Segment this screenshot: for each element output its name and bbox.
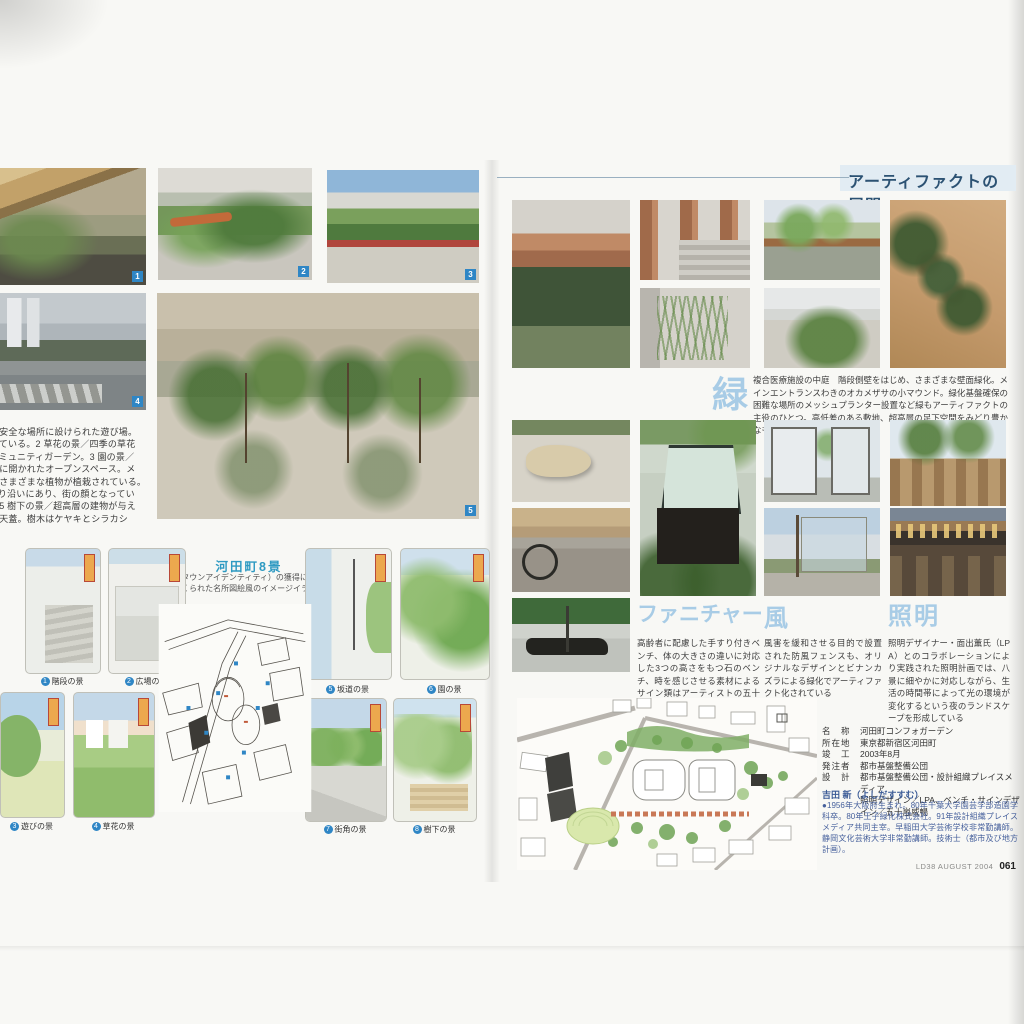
scan-corner-shadow [0,0,110,70]
caption-number-chip: 8 [413,825,422,834]
project-row: 竣 工 2003年8月 [822,749,1020,761]
caption-line: ッシュプランターには、さまざまな植物が植栽されている。 [0,476,158,488]
caption-label: 樹下の景 [424,825,456,834]
photo-wall-grasses [640,288,750,368]
page-number: 061 [999,861,1016,872]
photo-playground-canopy: 1 [0,168,146,285]
photo-bicycle-rack [512,508,630,592]
caption-number-chip: 3 [10,822,19,831]
light-pole-shape [566,606,569,652]
caption-number-chip: 6 [427,685,436,694]
photo-park-corten-wall [764,200,880,280]
magazine-spread: 1 2 3 4 5 遊びの景／敷地内の最も安全な場所に設けられた遊び場。 いつも… [0,0,1024,1024]
caption-number-chip: 4 [92,822,101,831]
illustration-under-trees-view [393,698,477,822]
photo-courtyard-trees: 5 [157,293,479,519]
caption-number-chip: 1 [41,677,50,686]
caption-label: 坂道の景 [337,685,369,694]
caption-label: 園の景 [438,685,462,694]
illustration-play-view [0,692,65,818]
tree-trunk-shape [347,363,349,463]
illustration-caption: 1階段の景 [25,676,99,687]
tree-trunk-shape [419,378,421,463]
designer-bio: ●1956年大阪府生まれ。80年千葉大学園芸学部造園学科卒。80年王子緑化株式会… [822,800,1018,855]
town-map-drawing [158,604,312,812]
title-slip [169,554,180,582]
caption-line: 遊びの景／敷地内の最も安全な場所に設けられた遊び場。 [0,426,158,438]
project-row: 発注者 都市基盤整備公団 [822,761,1020,773]
photo-sign-monument [640,420,756,596]
caption-line: いつも子供たちで賑わっている。2 草花の景／四季の草花 [0,438,158,450]
project-value: 河田町コンフォガーデン [860,726,1020,738]
section-text-lighting: 照明デザイナー・面出薫氏（LPA）とのコラボレーションにより実践された照明計画で… [888,637,1010,725]
illustration-garden-view [400,548,490,680]
bicycle-wheel-shape [522,544,558,580]
illustration-caption: 6園の景 [400,684,488,695]
photo-street-corner: 4 [0,293,146,410]
photo-hedge-flowers: 3 [327,170,479,283]
project-key: 所在地 [822,738,860,750]
site-plan-drawing [517,698,817,870]
photo-night-plaza [890,508,1006,596]
project-row: 所在地 東京都新宿区河田町 [822,738,1020,750]
caption-number-chip: 5 [326,685,335,694]
project-row: 名 称 河田町コンフォガーデン [822,726,1020,738]
title-slip [138,698,149,726]
caption-line: る圧迫感を緩和する緑の天蓋。樹木はケヤキとシラカシ [0,513,158,525]
illustration-flowers-view [73,692,155,818]
project-value: 2003年8月 [860,749,1020,761]
caption-line: 4 街角の景／女子医大通り沿いにあり、街の顔となってい [0,488,158,500]
title-slip [48,698,59,726]
illustration-slope-view [305,548,392,680]
caption-number-chip: 7 [324,825,333,834]
photo-number-badge: 2 [298,266,309,277]
caption-label: 遊びの景 [21,822,53,831]
section-label-lighting: 照明 [888,596,940,631]
photo-stone-bench [512,420,630,502]
illustration-caption: 3遊びの景 [0,821,63,832]
section-label-wind: 風 [764,598,788,633]
illustration-stairs-view [25,548,101,674]
photo-hedge-planters [890,200,1006,368]
caption-number-chip: 2 [125,677,134,686]
project-key: 竣 工 [822,749,860,761]
project-value: 都市基盤整備公団 [860,761,1020,773]
title-slip [473,554,484,582]
tree-trunk-shape [245,373,247,463]
photo-number-badge: 5 [465,505,476,516]
garden-wall-shape [170,212,232,227]
project-value: 東京都新宿区河田町 [860,738,1020,750]
section-label-furniture: ファニチャー [637,598,763,628]
title-slip [84,554,95,582]
photo-number-badge: 4 [132,396,143,407]
illustration-corner-view [305,698,387,822]
page-gutter [484,160,500,882]
caption-label: 街角の景 [335,825,367,834]
photo-plaza-paving [890,420,1006,506]
section-text-wind: 風害を緩和させる目的で設置された防風フェンスも、オリジナルなデザインとビナンカズ… [764,637,882,700]
illustration-caption: 7街角の景 [305,824,385,835]
scan-bottom-edge [0,946,1024,951]
section-label-green: 緑 [712,366,748,418]
photo-windscreen-panels [764,420,880,502]
caption-line: やハーブが植えられたコミュニティガーデン。3 園の景／ [0,451,158,463]
issue-label: LD38 AUGUST 2004 [916,862,994,871]
title-slip [370,704,381,732]
photo-entrance-mound [764,288,880,368]
title-slip [375,554,386,582]
illustration-caption: 5坂道の景 [305,684,390,695]
photo-number-badge: 1 [132,271,143,282]
photo-sunken-courtyard [512,200,630,368]
page-footer: LD38 AUGUST 2004061 [880,856,1016,874]
illustration-caption: 8樹下の景 [393,824,475,835]
project-key: 名 称 [822,726,860,738]
caption-line: 駐車場上部は台地エリアに開かれたオープンスペース。メ [0,463,158,475]
caption-label: 階段の景 [52,677,84,686]
photo-dark-bench [512,598,630,672]
photo-community-garden: 2 [158,168,312,280]
photo-glass-fence [764,508,880,596]
caption-label: 草花の景 [103,822,135,831]
photo-brick-stairs [640,200,750,280]
photo-number-badge: 3 [465,269,476,280]
illustration-caption: 4草花の景 [73,821,153,832]
title-slip [460,704,471,732]
project-key: 発注者 [822,761,860,773]
caption-line: るシマトネリコの広場。5 樹下の景／超高層の建物が与え [0,500,158,512]
header-rule [497,177,849,178]
photo-captions-block: 遊びの景／敷地内の最も安全な場所に設けられた遊び場。 いつも子供たちで賑わってい… [0,426,158,525]
